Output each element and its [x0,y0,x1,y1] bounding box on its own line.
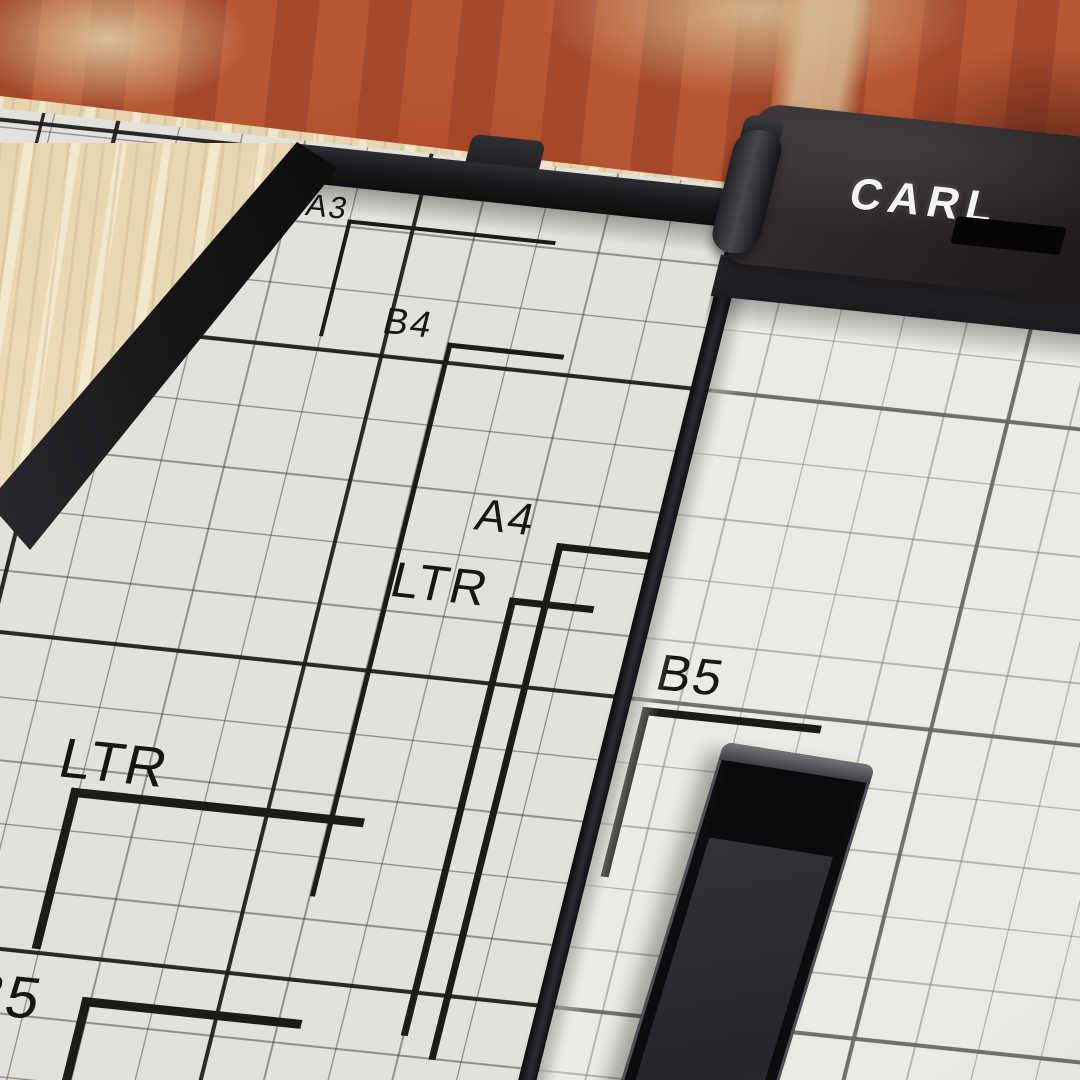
head-slot [950,216,1066,255]
size-mark-b4-label: B4 [379,300,438,346]
size-mark-a3-bracket [319,219,556,357]
photo-scene: A3 B4 A4 LTR B5 LTR B5 CARL [0,0,1080,1080]
size-mark-ltr-lower-label: LTR [53,725,176,800]
size-mark-ltr-upper-label: LTR [385,551,495,618]
size-mark-ltr-lower-bracket [32,788,365,980]
size-mark-a4-label: A4 [470,489,541,546]
